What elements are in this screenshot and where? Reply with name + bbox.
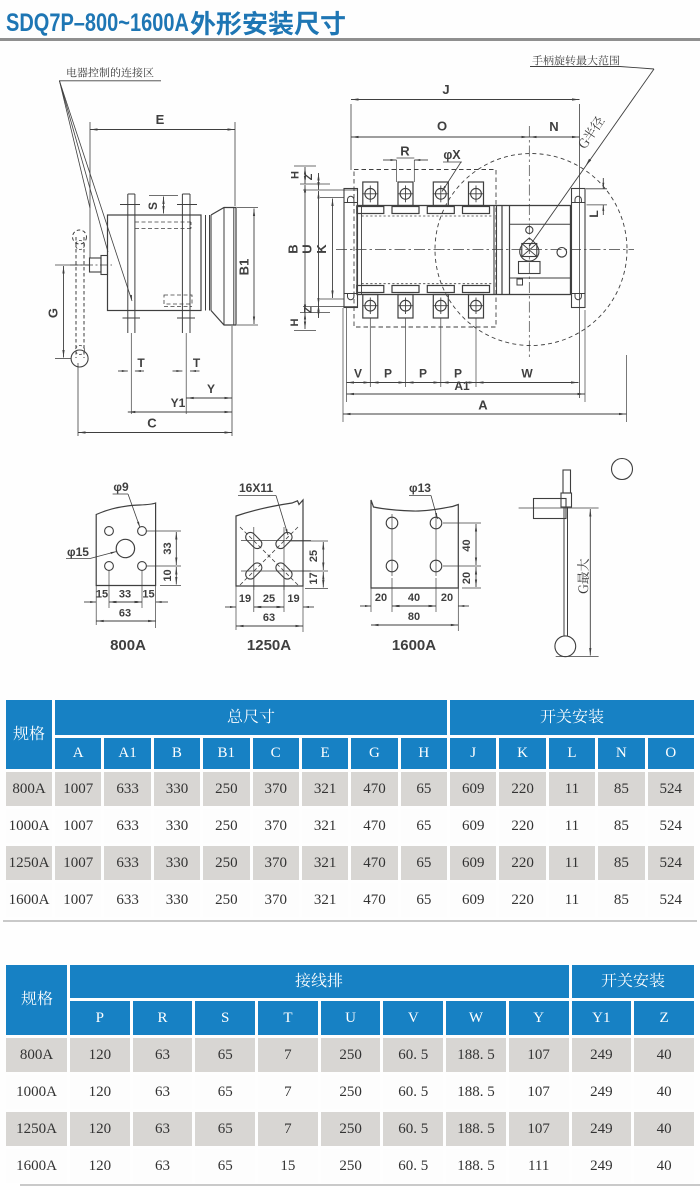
svg-text:800A: 800A bbox=[110, 637, 146, 654]
svg-text:Y: Y bbox=[207, 382, 215, 396]
svg-text:A: A bbox=[478, 398, 488, 413]
svg-text:63: 63 bbox=[263, 612, 275, 624]
svg-text:φX: φX bbox=[443, 148, 461, 162]
svg-text:40: 40 bbox=[461, 539, 473, 551]
svg-text:10: 10 bbox=[162, 569, 174, 581]
svg-text:A1: A1 bbox=[454, 379, 470, 393]
svg-text:Y1: Y1 bbox=[171, 396, 186, 410]
svg-text:φ9: φ9 bbox=[113, 480, 129, 494]
svg-text:K: K bbox=[314, 244, 329, 254]
svg-text:T: T bbox=[137, 356, 145, 370]
svg-text:19: 19 bbox=[287, 593, 299, 605]
svg-text:S: S bbox=[146, 202, 160, 210]
svg-text:L: L bbox=[587, 210, 601, 217]
svg-text:17: 17 bbox=[308, 572, 320, 584]
svg-text:R: R bbox=[400, 144, 410, 159]
svg-text:T: T bbox=[193, 356, 201, 370]
svg-text:N: N bbox=[549, 119, 558, 134]
svg-text:V: V bbox=[354, 367, 362, 381]
svg-text:1600A: 1600A bbox=[392, 637, 436, 654]
svg-text:P: P bbox=[384, 367, 392, 381]
svg-text:E: E bbox=[156, 112, 165, 127]
svg-text:B: B bbox=[286, 244, 301, 253]
svg-text:25: 25 bbox=[308, 550, 320, 562]
svg-text:H: H bbox=[289, 318, 301, 326]
svg-text:φ13: φ13 bbox=[409, 481, 431, 495]
svg-text:63: 63 bbox=[119, 608, 131, 620]
svg-text:C: C bbox=[147, 416, 157, 431]
svg-text:φ15: φ15 bbox=[67, 545, 89, 559]
svg-text:Z: Z bbox=[303, 173, 315, 180]
svg-text:15: 15 bbox=[142, 589, 154, 601]
svg-text:G: G bbox=[46, 308, 61, 318]
svg-text:20: 20 bbox=[441, 592, 453, 604]
svg-text:15: 15 bbox=[96, 589, 108, 601]
svg-text:33: 33 bbox=[119, 589, 131, 601]
svg-text:20: 20 bbox=[375, 592, 387, 604]
svg-text:1250A: 1250A bbox=[247, 637, 291, 654]
svg-text:W: W bbox=[521, 367, 533, 381]
svg-text:33: 33 bbox=[162, 542, 174, 554]
svg-text:P: P bbox=[419, 367, 427, 381]
svg-text:B1: B1 bbox=[237, 259, 252, 276]
svg-text:25: 25 bbox=[263, 593, 275, 605]
svg-text:20: 20 bbox=[461, 572, 473, 584]
svg-text:O: O bbox=[437, 119, 447, 134]
svg-text:H: H bbox=[290, 171, 302, 179]
svg-text:U: U bbox=[300, 244, 315, 253]
svg-text:19: 19 bbox=[239, 593, 251, 605]
svg-text:16X11: 16X11 bbox=[239, 481, 273, 495]
svg-text:Z: Z bbox=[303, 306, 315, 313]
svg-text:40: 40 bbox=[408, 592, 420, 604]
svg-text:J: J bbox=[442, 82, 449, 97]
svg-text:80: 80 bbox=[408, 611, 420, 623]
